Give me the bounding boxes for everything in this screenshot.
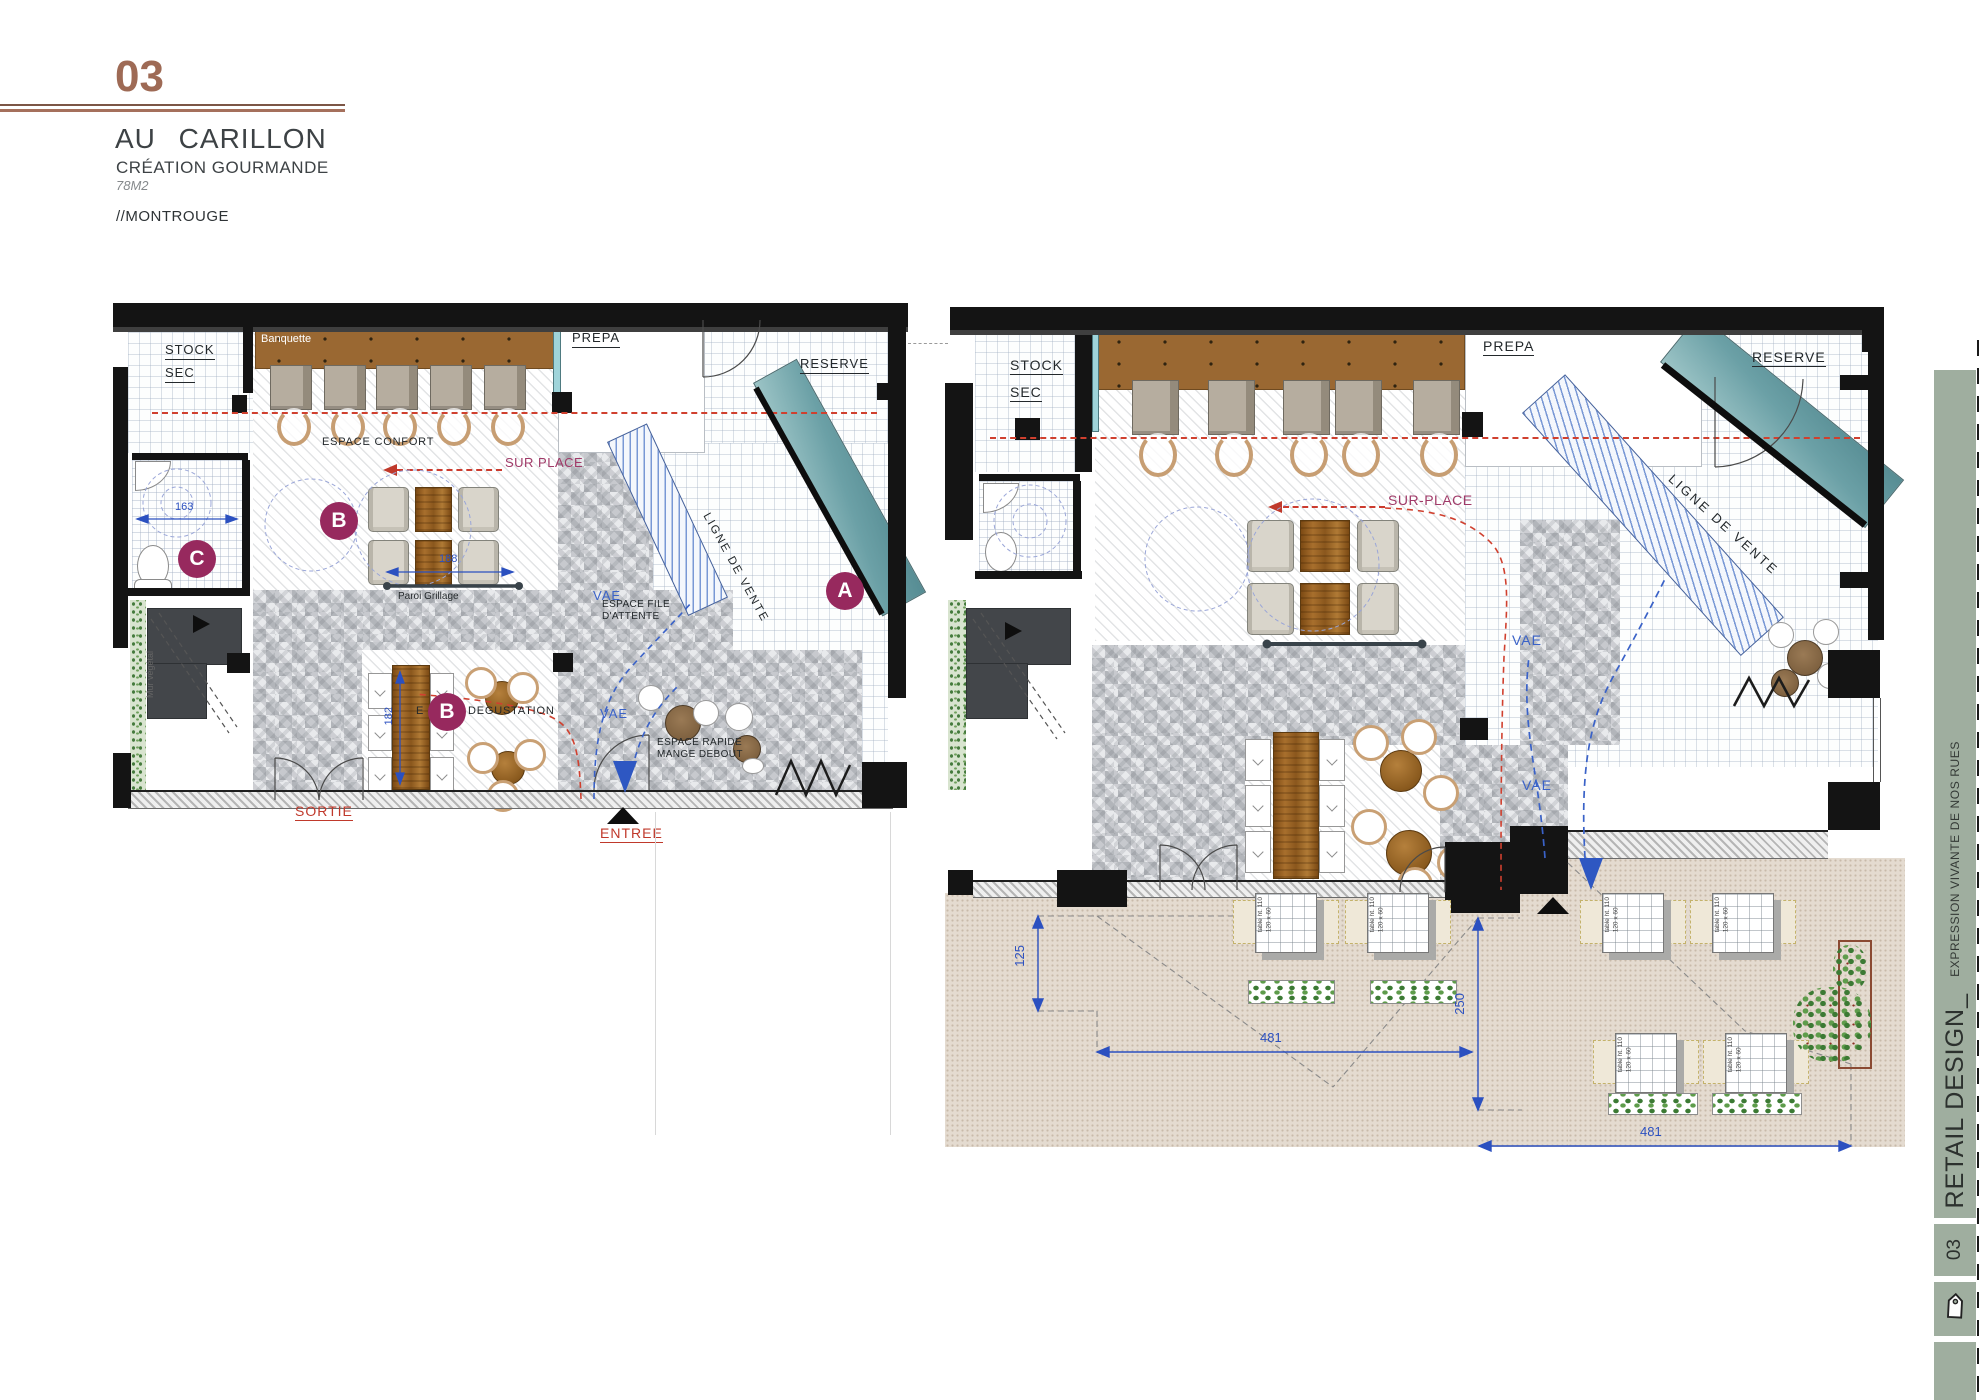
chair	[1245, 739, 1271, 781]
reserve-label: RESERVE	[1752, 349, 1826, 367]
wicker-chair	[1423, 775, 1459, 811]
sur-place-label: SUR PLACE	[505, 456, 583, 471]
terrace-table-label: table ht. 110120 x 60	[1714, 897, 1731, 932]
espace-rapide-label: ESPACE RAPIDE MANGE DEBOUT	[657, 737, 743, 760]
storefront-sill	[128, 790, 893, 809]
left-wall	[945, 383, 973, 540]
mur-vegetal-label: Mur végétal	[145, 651, 155, 698]
wall-pier	[1462, 412, 1483, 437]
wc-wall-bottom	[128, 588, 250, 596]
banquette-table	[1283, 380, 1330, 435]
toilet	[985, 532, 1017, 572]
banquette-table	[376, 365, 418, 410]
terrace-table: table ht. 110120 x 60	[1615, 1033, 1677, 1093]
reserve-label: RESERVE	[800, 357, 869, 374]
dim-481-top: 481	[1260, 1031, 1282, 1046]
wall-stub	[1840, 375, 1868, 390]
terrace-table-label-line2: 120 x 60	[1625, 1037, 1633, 1072]
standing-table	[1771, 669, 1799, 697]
terrace-table-label: table ht. 110120 x 60	[1727, 1037, 1744, 1072]
header-rule-bottom	[0, 109, 345, 112]
column-line	[890, 812, 891, 1135]
sur-place-arrowhead	[383, 464, 397, 476]
stock-label-2: SEC	[165, 366, 195, 383]
marker-b-confort: B	[320, 502, 358, 540]
armchair	[1247, 583, 1294, 635]
red-axis-line	[990, 437, 1860, 439]
terrace-table-label-line2: 120 x 60	[1722, 897, 1730, 932]
espace-rapide-line1: ESPACE RAPIDE	[657, 737, 743, 749]
armchair	[1247, 520, 1294, 572]
chair	[368, 673, 392, 709]
floor-plan-small: Banquette STOCK SEC PREPA RESERVE ESPACE…	[113, 303, 913, 848]
chair	[1245, 785, 1271, 827]
terrace-table-label-line1: table ht. 110	[1257, 897, 1265, 932]
banquette-table	[430, 365, 472, 410]
vae-label-1: VAE	[1512, 632, 1542, 648]
stairs-landing	[227, 653, 250, 673]
floor-tiles-left	[1092, 745, 1245, 880]
espace-rapide-line2: MANGE DEBOUT	[657, 749, 743, 761]
armchair	[368, 487, 409, 532]
wc-wall-right	[242, 460, 250, 590]
right-wall	[888, 303, 906, 698]
wall-stub	[877, 383, 903, 400]
terrace-table-label-line1: table ht. 110	[1604, 897, 1612, 932]
stock-wall	[1075, 335, 1092, 472]
terrace-table-group: table ht. 110120 x 60	[1580, 893, 1684, 953]
banquette-table	[270, 365, 312, 410]
sur-place-label: SUR-PLACE	[1388, 492, 1473, 508]
vae-label-2: VAE	[1522, 777, 1552, 793]
low-table	[1300, 520, 1350, 572]
top-wall	[950, 307, 1878, 330]
column-line	[655, 812, 656, 1135]
prepa-label: PREPA	[572, 331, 620, 348]
armchair	[458, 487, 499, 532]
floor-tiles-left	[253, 650, 362, 800]
terrace-table: table ht. 110120 x 60	[1712, 893, 1774, 953]
sur-place-arrow-line	[1283, 506, 1385, 508]
stock-wall	[243, 323, 253, 393]
terrace-table-group: table ht. 110120 x 60	[1345, 893, 1449, 953]
banquette-table	[1208, 380, 1255, 435]
degustation-table	[1273, 732, 1319, 879]
terrace-table: table ht. 110120 x 60	[1725, 1033, 1787, 1093]
banquette-table	[484, 365, 526, 410]
green-wall	[948, 600, 966, 790]
armchair	[1357, 583, 1399, 635]
stairs	[147, 663, 207, 719]
green-wall	[130, 600, 146, 790]
corner-pier	[1828, 782, 1880, 830]
planter	[1248, 980, 1335, 1004]
tag-icon	[1935, 1289, 1975, 1329]
banquette-table	[324, 365, 366, 410]
planter-shrubs	[1609, 1094, 1697, 1114]
corner-pier	[113, 753, 131, 808]
dim-250: 250	[1453, 993, 1468, 1015]
chair	[1319, 785, 1345, 827]
marker-b-degustation: B	[428, 693, 466, 731]
wicker-chair	[1351, 809, 1387, 845]
standing-stool	[742, 758, 764, 774]
sortie-label: SORTIE	[295, 803, 353, 821]
terrace-table-label: table ht. 110120 x 60	[1604, 897, 1621, 932]
terrace-table-label-line2: 120 x 60	[1735, 1037, 1743, 1072]
stairs-direction-arrow	[1005, 622, 1022, 640]
chair	[1139, 433, 1177, 477]
floor-plan-large: STOCK SEC PREPA RESERVE SUR-PLACE VAE VA…	[945, 307, 1905, 1152]
sidebar-icon-block	[1934, 1282, 1976, 1336]
entrance-arrow	[607, 807, 639, 824]
banquette-table	[1132, 380, 1179, 435]
page-subtitle: CRÉATION GOURMANDE	[116, 158, 329, 178]
terrace-table-label-line2: 120 x 60	[1612, 897, 1620, 932]
sur-place-arrow-line	[397, 469, 502, 471]
armchair	[458, 540, 499, 585]
banquette-table	[1413, 380, 1460, 435]
wc-wall-bottom	[975, 571, 1082, 579]
wall-pier	[232, 395, 247, 413]
sidebar-number-block: 03	[1934, 1224, 1976, 1276]
wicker-chair	[507, 672, 539, 704]
standing-table	[725, 703, 753, 731]
corner-pier	[948, 870, 973, 895]
wall-pier	[1460, 718, 1488, 740]
top-wall	[113, 303, 908, 327]
marker-a-vente: A	[826, 572, 864, 610]
page: 03 AU CARILLON CRÉATION GOURMANDE 78M2 /…	[0, 0, 1980, 1400]
left-wall	[113, 367, 128, 648]
marker-c-wc: C	[178, 540, 216, 578]
prepa-label: PREPA	[1483, 338, 1534, 356]
vae-label-1: VAE	[593, 589, 621, 604]
planter	[1712, 1093, 1802, 1115]
chair	[1319, 831, 1345, 873]
sidebar-footer-block	[1934, 1342, 1976, 1400]
dim-125: 125	[1013, 945, 1028, 967]
vae-entry-arrow	[1579, 858, 1603, 890]
wall-pier	[553, 653, 573, 672]
standing-table	[638, 685, 664, 711]
dim-163: 163	[175, 501, 193, 514]
terrace-table: table ht. 110120 x 60	[1602, 893, 1664, 953]
sidebar-number: 03	[1944, 1239, 1966, 1260]
terrace-table: table ht. 110120 x 60	[1367, 893, 1429, 953]
wicker-chair	[514, 739, 546, 771]
edge-dashed-line	[1977, 340, 1979, 1400]
terrace-table-label-line1: table ht. 110	[1727, 1037, 1735, 1072]
planter-shrubs	[1371, 981, 1456, 1003]
page-area: 78M2	[116, 179, 149, 194]
sidebar-tagline: EXPRESSION VIVANTE DE NOS RUES	[1948, 741, 1962, 977]
terrace-table-group: table ht. 110120 x 60	[1703, 1033, 1807, 1093]
degustation-label: DEGUSTATION	[468, 705, 555, 718]
planter-shrubs	[1713, 1094, 1801, 1114]
wicker-chair	[1401, 719, 1437, 755]
banquette-label: Banquette	[261, 333, 311, 346]
round-table	[1380, 750, 1422, 792]
terrace-table: table ht. 110120 x 60	[1255, 893, 1317, 953]
espace-file-line2: D'ATTENTE	[602, 611, 670, 623]
entree-label: ENTREE	[600, 825, 663, 843]
chair	[1319, 739, 1345, 781]
planter	[1608, 1093, 1698, 1115]
page-title: AU CARILLON	[115, 123, 327, 155]
terrace-table-label: table ht. 110120 x 60	[1617, 1037, 1634, 1072]
wall-pier	[552, 392, 572, 413]
degustation-prefix: E	[416, 705, 424, 718]
red-axis-line	[152, 412, 877, 414]
header-rule-top	[0, 104, 345, 106]
wc-wall-right	[1073, 481, 1081, 573]
entrance-arrow	[1537, 897, 1569, 914]
wall-stub	[1840, 572, 1868, 588]
sidebar-title: RETAIL DESIGN_	[1941, 993, 1970, 1208]
sur-place-arrowhead	[1268, 501, 1282, 513]
top-wall-shadow	[113, 327, 908, 332]
storefront-sill	[1568, 830, 1828, 859]
terrace-table-label: table ht. 110120 x 60	[1257, 897, 1274, 932]
terrace-table-group: table ht. 110120 x 60	[1593, 1033, 1697, 1093]
entrance-pier	[1057, 870, 1127, 907]
trellis-greenery	[1793, 987, 1871, 1062]
espace-confort-label: ESPACE CONFORT	[322, 436, 434, 449]
corner-pier	[862, 762, 907, 808]
wicker-chair	[467, 742, 499, 774]
terrace-table-label-line1: table ht. 110	[1369, 897, 1377, 932]
page-location: //MONTROUGE	[116, 208, 229, 225]
armchair	[1357, 520, 1399, 572]
dim-481-bottom: 481	[1640, 1125, 1662, 1140]
chair	[430, 757, 454, 793]
terrace-table-label: table ht. 110120 x 60	[1369, 897, 1386, 932]
wicker-chair	[1353, 725, 1389, 761]
chair	[368, 757, 392, 793]
degustation-table	[392, 665, 430, 790]
terrace-table-label-line1: table ht. 110	[1714, 897, 1722, 932]
terrace-table-label-line2: 120 x 60	[1265, 897, 1273, 932]
entrance-pier	[1445, 842, 1520, 913]
dim-182: 182	[383, 707, 396, 725]
stairs-direction-arrow	[193, 615, 210, 633]
stairs	[966, 663, 1028, 719]
terrace-table-group: table ht. 110120 x 60	[1233, 893, 1337, 953]
storefront-glass	[1873, 698, 1881, 782]
corner-pier	[1828, 650, 1880, 698]
wc-wall-top	[132, 453, 248, 460]
chair	[1290, 433, 1328, 477]
terrace-table-label-line2: 120 x 60	[1377, 897, 1385, 932]
trellis-greenery	[1833, 945, 1867, 991]
page-number: 03	[115, 52, 164, 103]
vae-label-2: VAE	[600, 707, 628, 722]
right-wall	[1868, 346, 1884, 640]
vae-entry-arrow	[613, 761, 637, 793]
banquette-table	[1335, 380, 1382, 435]
stock-label-2: SEC	[1010, 384, 1042, 402]
chair	[1420, 433, 1458, 477]
glass-partition	[1092, 330, 1099, 432]
chair	[1245, 831, 1271, 873]
low-table	[1300, 583, 1350, 635]
standing-table	[1813, 619, 1839, 645]
stock-label-1: STOCK	[165, 343, 215, 360]
planter-shrubs	[1249, 981, 1334, 1003]
axis-connector	[908, 343, 948, 344]
wc-wall-top	[979, 474, 1080, 481]
terrace-table-label-line1: table ht. 110	[1617, 1037, 1625, 1072]
standing-table	[693, 700, 719, 726]
dim-188: 188	[439, 553, 457, 566]
low-table	[415, 487, 452, 532]
terrace-table-group: table ht. 110120 x 60	[1690, 893, 1794, 953]
armchair	[368, 540, 409, 585]
stock-label-1: STOCK	[1010, 357, 1063, 375]
wicker-chair	[465, 667, 497, 699]
chair	[1215, 433, 1253, 477]
sidebar-main: EXPRESSION VIVANTE DE NOS RUES RETAIL DE…	[1934, 370, 1976, 1218]
paroi-grillage-label: Paroi Grillage	[398, 591, 459, 603]
planter	[1370, 980, 1457, 1004]
chair	[1342, 433, 1380, 477]
standing-table	[1768, 622, 1794, 648]
